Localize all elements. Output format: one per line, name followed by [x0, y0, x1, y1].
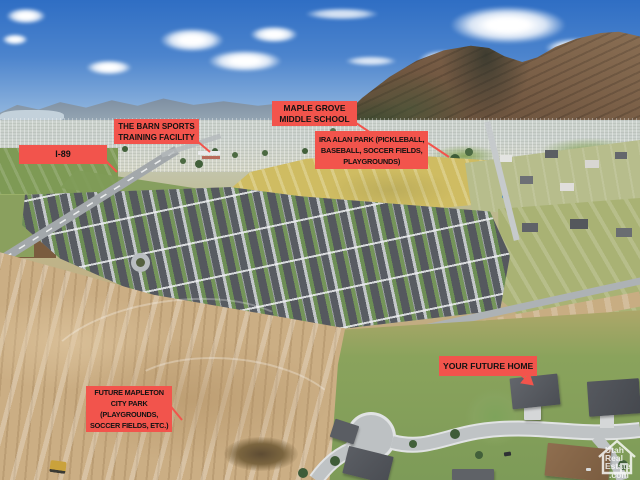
label-ira-alan-park: IRA ALAN PARK (PICKLEBALL, BASEBALL, SOC…: [315, 131, 428, 169]
watermark-text: .com: [609, 470, 629, 479]
aerial-photo: I-89 THE BARN SPORTS TRAINING FACILITY M…: [0, 0, 640, 480]
label-your-future-home: YOUR FUTURE HOME: [439, 356, 537, 376]
label-i89: I-89: [19, 145, 107, 164]
label-future-mapleton-city-park: FUTURE MAPLETON CITY PARK (PLAYGROUNDS, …: [86, 386, 172, 432]
pointer-i89: [106, 161, 117, 172]
watermark-logo: Utah Real Estate .com: [596, 435, 638, 479]
pointer-ira-alan-park: [428, 143, 449, 157]
label-barn-sports: THE BARN SPORTS TRAINING FACILITY: [114, 119, 199, 144]
label-maple-grove-middle-school: MAPLE GROVE MIDDLE SCHOOL: [272, 101, 357, 126]
